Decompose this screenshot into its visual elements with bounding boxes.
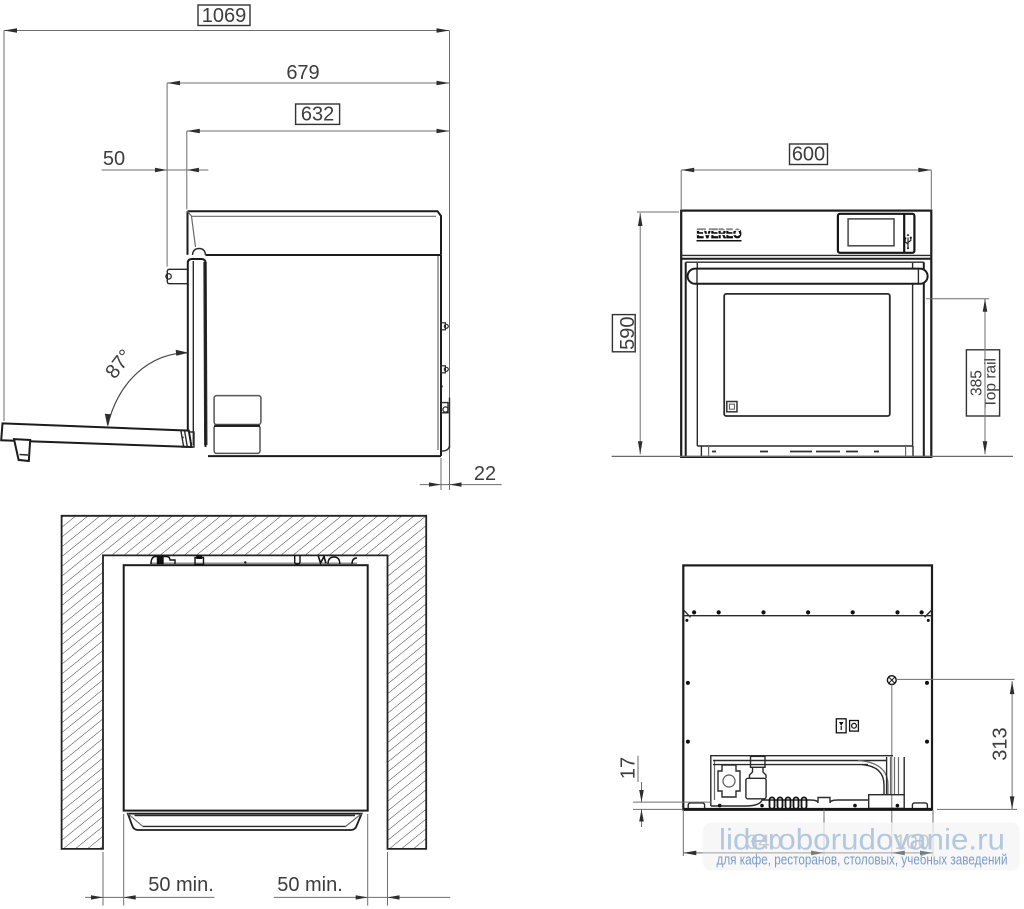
- svg-text:590: 590: [617, 317, 639, 350]
- svg-text:1069: 1069: [202, 5, 247, 27]
- svg-text:632: 632: [301, 104, 334, 126]
- svg-text:679: 679: [286, 62, 319, 84]
- svg-text:313: 313: [989, 727, 1011, 760]
- svg-text:600: 600: [792, 144, 825, 166]
- svg-text:17: 17: [617, 757, 639, 779]
- svg-text:50 min.: 50 min.: [148, 874, 214, 896]
- svg-text:50 min.: 50 min.: [277, 874, 343, 896]
- svg-text:22: 22: [474, 463, 496, 485]
- svg-text:для кафе, ресторанов, столовых: для кафе, ресторанов, столовых, учебных …: [717, 853, 1008, 869]
- svg-text:50: 50: [103, 148, 125, 170]
